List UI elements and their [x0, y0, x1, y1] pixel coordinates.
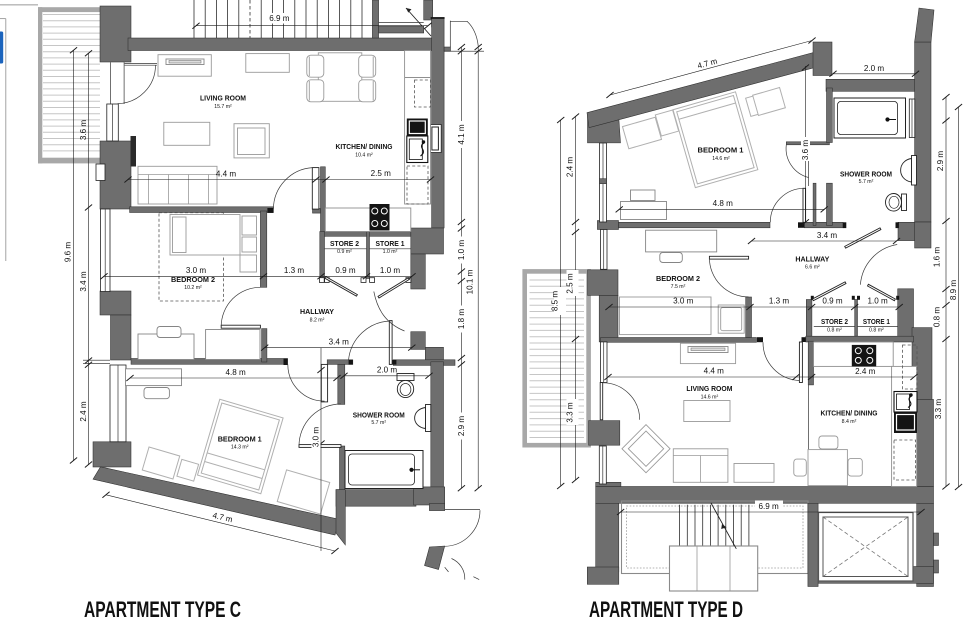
svg-text:2.4 m: 2.4 m	[855, 367, 876, 376]
svg-text:SHOWER ROOM: SHOWER ROOM	[353, 411, 405, 420]
svg-text:1.3 m: 1.3 m	[284, 266, 305, 275]
svg-text:HALLWAY: HALLWAY	[300, 307, 334, 316]
svg-text:4.4 m: 4.4 m	[216, 170, 237, 179]
svg-text:1.0 m: 1.0 m	[867, 297, 888, 306]
svg-text:0.8 m²: 0.8 m²	[869, 328, 884, 334]
svg-text:3.6 m: 3.6 m	[801, 140, 810, 161]
svg-text:HALLWAY: HALLWAY	[795, 255, 829, 264]
svg-text:3.3 m: 3.3 m	[934, 399, 943, 420]
svg-text:LIVING ROOM: LIVING ROOM	[686, 384, 732, 393]
svg-text:6.6 m²: 6.6 m²	[805, 265, 820, 271]
svg-text:3.0 m: 3.0 m	[673, 297, 694, 306]
svg-text:4.8 m: 4.8 m	[225, 368, 246, 377]
svg-text:5.7 m²: 5.7 m²	[371, 420, 386, 426]
svg-text:STORE 1: STORE 1	[376, 239, 406, 248]
svg-text:KITCHEN/ DINING: KITCHEN/ DINING	[821, 409, 878, 418]
svg-text:0.9 m: 0.9 m	[822, 297, 843, 306]
svg-text:BEDROOM 2: BEDROOM 2	[656, 274, 700, 283]
svg-text:0.9 m: 0.9 m	[335, 266, 356, 275]
svg-text:15.7 m²: 15.7 m²	[214, 104, 232, 110]
svg-text:3.4 m: 3.4 m	[329, 338, 350, 347]
svg-text:1.0 m²: 1.0 m²	[383, 249, 398, 255]
svg-text:2.5 m: 2.5 m	[566, 273, 575, 294]
svg-text:1.3 m: 1.3 m	[769, 297, 790, 306]
svg-text:8.9 m: 8.9 m	[949, 280, 958, 301]
svg-text:0.9 m²: 0.9 m²	[337, 249, 352, 255]
svg-text:2.9 m: 2.9 m	[936, 151, 945, 172]
svg-text:STORE 2: STORE 2	[330, 239, 359, 248]
svg-text:1.0 m: 1.0 m	[380, 266, 401, 275]
svg-text:APARTMENT TYPE C: APARTMENT TYPE C	[84, 597, 241, 622]
svg-text:0.8 m: 0.8 m	[933, 307, 942, 328]
svg-text:10.4 m²: 10.4 m²	[355, 153, 373, 159]
svg-text:2.0 m: 2.0 m	[377, 366, 398, 375]
svg-text:3.4 m: 3.4 m	[79, 271, 88, 292]
svg-text:10.1 m: 10.1 m	[466, 269, 475, 294]
svg-text:1.8 m: 1.8 m	[457, 309, 466, 330]
svg-text:10.2 m²: 10.2 m²	[184, 285, 202, 291]
svg-text:2.9 m: 2.9 m	[457, 416, 466, 437]
svg-text:3.3 m: 3.3 m	[566, 402, 575, 423]
svg-text:APARTMENT TYPE D: APARTMENT TYPE D	[589, 597, 743, 622]
svg-text:14.6 m²: 14.6 m²	[701, 394, 719, 400]
svg-text:5.7 m²: 5.7 m²	[859, 179, 874, 185]
svg-text:4.8 m: 4.8 m	[713, 199, 734, 208]
svg-text:SHOWER ROOM: SHOWER ROOM	[840, 170, 892, 179]
svg-text:14.6 m²: 14.6 m²	[712, 156, 730, 162]
svg-text:1.0 m: 1.0 m	[457, 240, 466, 261]
svg-text:3.6 m: 3.6 m	[79, 120, 88, 141]
svg-text:6.9 m: 6.9 m	[269, 14, 290, 23]
svg-text:14.3 m²: 14.3 m²	[231, 445, 249, 451]
svg-text:STORE 2: STORE 2	[821, 317, 848, 326]
svg-text:8.4 m²: 8.4 m²	[842, 419, 857, 425]
svg-text:8.5 m: 8.5 m	[551, 291, 560, 312]
svg-text:2.4 m: 2.4 m	[79, 401, 88, 422]
svg-text:2.5 m: 2.5 m	[371, 169, 392, 178]
svg-text:2.4 m: 2.4 m	[566, 157, 575, 178]
svg-text:BEDROOM 1: BEDROOM 1	[698, 146, 745, 155]
svg-text:LIVING ROOM: LIVING ROOM	[200, 94, 246, 103]
svg-text:4.1 m: 4.1 m	[457, 124, 466, 145]
svg-text:7.5 m²: 7.5 m²	[671, 284, 686, 290]
svg-text:3.4 m: 3.4 m	[817, 231, 838, 240]
svg-text:6.9 m: 6.9 m	[758, 502, 779, 511]
svg-text:BEDROOM 1: BEDROOM 1	[218, 435, 263, 444]
svg-text:3.0 m: 3.0 m	[312, 427, 321, 448]
svg-text:KITCHEN/ DINING: KITCHEN/ DINING	[336, 142, 393, 151]
svg-text:0.8 m²: 0.8 m²	[827, 328, 842, 334]
svg-text:3.0 m: 3.0 m	[186, 266, 207, 275]
svg-text:1.6 m: 1.6 m	[933, 247, 942, 268]
svg-text:2.0 m: 2.0 m	[864, 64, 885, 73]
svg-text:STORE 1: STORE 1	[863, 317, 891, 326]
svg-text:8.2 m²: 8.2 m²	[310, 318, 325, 324]
svg-text:4.4 m: 4.4 m	[704, 367, 725, 376]
svg-text:9.6 m: 9.6 m	[64, 242, 73, 263]
